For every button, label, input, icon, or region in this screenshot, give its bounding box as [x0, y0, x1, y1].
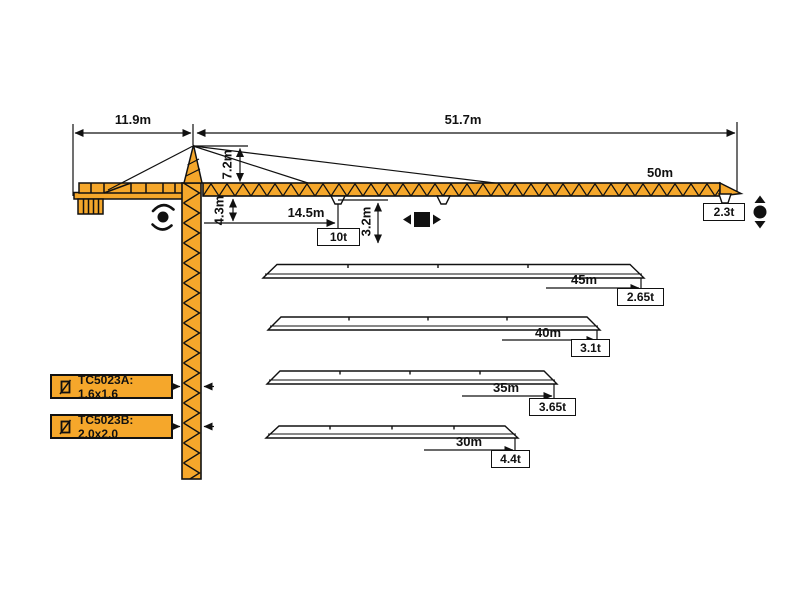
variant-load-30m: 4.4t	[491, 450, 530, 468]
counter-jib	[74, 183, 197, 199]
crane-drawing	[0, 0, 800, 600]
dim-label-total-jib: 51.7m	[433, 112, 493, 127]
dim-label-radius: 14.5m	[276, 205, 336, 220]
model-b-label: TC5023B: 2.0x2.0	[78, 413, 171, 441]
hook-tip	[719, 194, 731, 203]
slewing-icon	[153, 205, 174, 229]
dim-label-hook-drop: 3.2m	[359, 202, 374, 242]
variant-load-40m: 3.1t	[571, 339, 610, 357]
hoist-icon	[754, 196, 767, 229]
hook-mid	[437, 196, 450, 204]
load-box-max: 10t	[317, 228, 360, 246]
dim-label-full-jib: 50m	[635, 165, 685, 180]
variant-length-30m: 30m	[444, 434, 494, 449]
tower-head	[184, 145, 202, 183]
dim-label-under-jib: 4.3m	[212, 191, 227, 231]
load-box-tip-50m: 2.3t	[703, 203, 745, 221]
tower-mast	[182, 145, 202, 479]
model-a-label: TC5023A: 1.6x1.6	[78, 373, 171, 401]
variant-length-40m: 40m	[523, 325, 573, 340]
ballast-blocks	[78, 199, 103, 214]
variant-load-45m: 2.65t	[617, 288, 664, 306]
model-box-a: TC5023A: 1.6x1.6	[50, 374, 173, 399]
main-jib	[203, 183, 741, 196]
mast-section-icon	[59, 379, 72, 395]
variant-length-35m: 35m	[481, 380, 531, 395]
mast-section-icon	[59, 419, 72, 435]
variant-length-45m: 45m	[559, 272, 609, 287]
crane-diagram: 11.9m 51.7m 50m 14.5m 7.2m 4.3m 3.2m 10t…	[0, 0, 800, 600]
dim-label-counter-jib: 11.9m	[103, 112, 163, 127]
model-box-b: TC5023B: 2.0x2.0	[50, 414, 173, 439]
trolley-icon	[403, 212, 441, 227]
variant-load-35m: 3.65t	[529, 398, 576, 416]
dim-label-head-height: 7.2m	[220, 145, 235, 185]
